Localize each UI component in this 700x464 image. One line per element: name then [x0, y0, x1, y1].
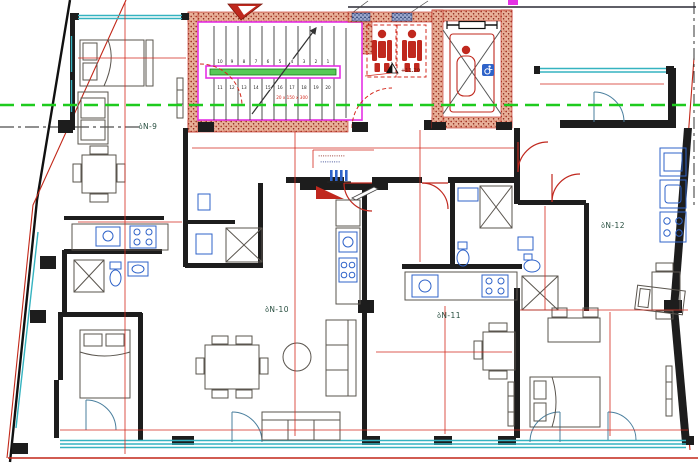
kitchen-apt11 — [405, 272, 517, 300]
fridge-icon — [336, 200, 360, 226]
toilet-icon — [524, 260, 540, 272]
furniture — [73, 40, 685, 440]
apartment-12-label: ბN-12 — [601, 221, 625, 230]
apartment-9-label: ბN-9 — [139, 122, 158, 131]
step-number: 14 — [253, 85, 259, 90]
toilet-icon — [457, 250, 469, 266]
step-number: 19 — [313, 85, 319, 90]
doors — [86, 92, 636, 442]
step-number: 12 — [229, 85, 235, 90]
dining-table-apt9 — [73, 146, 125, 202]
bathroom-apt11 — [457, 186, 512, 266]
apartment-10-label: ბN-10 — [265, 305, 289, 314]
step-number: 16 — [277, 85, 283, 90]
bed-apt9 — [80, 40, 153, 86]
site-boundary-lines — [0, 0, 698, 462]
step-number: 4 — [291, 59, 294, 64]
windows — [60, 16, 686, 448]
wheelchair-icon — [482, 64, 494, 76]
step-number: 11 — [217, 85, 223, 90]
sofa-horizontal-apt10 — [262, 412, 340, 440]
sofa-vertical-apt10 — [326, 320, 356, 396]
floor-plan-canvas: 10 9 8 7 6 5 4 3 2 1 11 12 13 14 15 16 1… — [0, 0, 700, 464]
person-icon — [402, 30, 422, 72]
stove-icon — [130, 226, 156, 248]
bathroom-apt12 — [518, 237, 558, 310]
dining-table-apt11 — [474, 323, 515, 379]
step-number: 7 — [255, 59, 258, 64]
step-number: 20 — [325, 85, 331, 90]
entry-door-apt12 — [518, 142, 580, 202]
annotation-line2: ∙∙∙∙∙∙∙∙∙ — [320, 160, 340, 164]
sink-icon — [96, 227, 120, 246]
step-number: 6 — [267, 59, 270, 64]
step-number: 9 — [231, 59, 234, 64]
magenta-tick-marker — [508, 0, 518, 5]
step-number: 18 — [301, 85, 307, 90]
toilet-icon — [198, 194, 210, 210]
step-number: 13 — [241, 85, 247, 90]
bathroom-left — [74, 260, 148, 292]
stair-core: 10 9 8 7 6 5 4 3 2 1 11 12 13 14 15 16 1… — [188, 4, 392, 132]
step-number: 17 — [289, 85, 295, 90]
desk-apt11 — [548, 308, 600, 342]
elevator-shaft — [432, 10, 512, 130]
level-marker-icon — [365, 63, 398, 76]
floor-plan-drawing: 10 9 8 7 6 5 4 3 2 1 11 12 13 14 15 16 1… — [0, 0, 700, 464]
dining-table-apt10 — [196, 336, 268, 398]
fixtures — [72, 148, 686, 310]
step-number: 3 — [303, 59, 306, 64]
step-number: 8 — [243, 59, 246, 64]
step-number: 10 — [217, 59, 223, 64]
toilet-icon — [110, 270, 121, 286]
kitchen-apt10 — [336, 200, 360, 304]
step-number: 5 — [279, 59, 282, 64]
step-number: 15 — [265, 85, 271, 90]
bathroom-apt10 — [196, 194, 262, 262]
entry-door-apt11 — [422, 183, 448, 209]
step-number: 2 — [315, 59, 318, 64]
armchair-apt9 — [78, 92, 108, 144]
coffee-table — [283, 343, 311, 371]
step-number: 1 — [327, 59, 330, 64]
person-icon — [372, 30, 392, 72]
stair-dimension-note: 20 x 150 x 300 — [276, 95, 308, 100]
washbasin-icon — [196, 234, 212, 254]
washbasin-icon — [518, 237, 533, 250]
balcony-doors — [86, 92, 636, 442]
washbasin-icon — [128, 262, 148, 276]
counterweight-icon — [447, 21, 497, 29]
annotation-line1: ∙∙∙∙∙∙∙∙∙∙∙∙ — [318, 154, 345, 158]
level-mark-text: +11.20 — [401, 68, 421, 74]
washbasin-icon — [458, 188, 478, 201]
apartment-11-label: ბN-11 — [437, 311, 461, 320]
person-icon — [462, 46, 470, 54]
bed-lower-left — [80, 330, 130, 398]
dimension-lines — [60, 2, 688, 454]
